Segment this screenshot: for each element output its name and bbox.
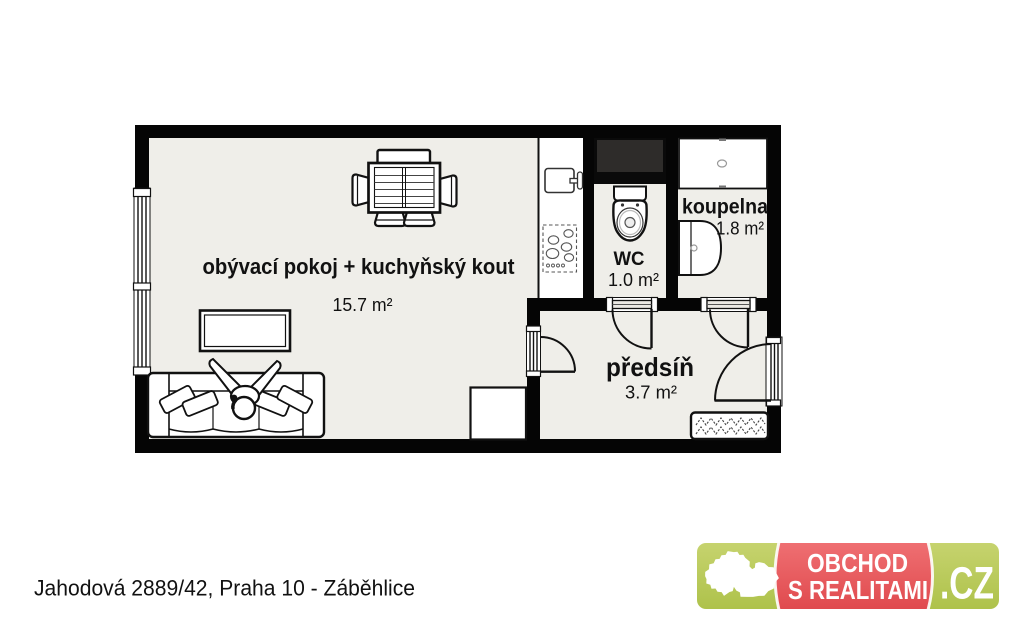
- svg-text:OBCHOD: OBCHOD: [807, 548, 908, 578]
- svg-text:1.0 m²: 1.0 m²: [608, 269, 659, 290]
- svg-text:3.7 m²: 3.7 m²: [625, 382, 677, 403]
- svg-text:obývací pokoj + kuchyňský kout: obývací pokoj + kuchyňský kout: [203, 254, 516, 279]
- svg-text:.CZ: .CZ: [940, 558, 994, 609]
- svg-text:Jahodová 2889/42, Praha 10 - Z: Jahodová 2889/42, Praha 10 - Záběhlice: [34, 576, 415, 601]
- svg-text:15.7 m²: 15.7 m²: [333, 294, 393, 315]
- svg-text:předsíň: předsíň: [606, 352, 694, 382]
- svg-text:WC: WC: [614, 248, 645, 270]
- svg-text:koupelna: koupelna: [682, 195, 769, 219]
- svg-text:S REALITAMI: S REALITAMI: [788, 575, 928, 605]
- svg-text:1.8 m²: 1.8 m²: [716, 218, 764, 239]
